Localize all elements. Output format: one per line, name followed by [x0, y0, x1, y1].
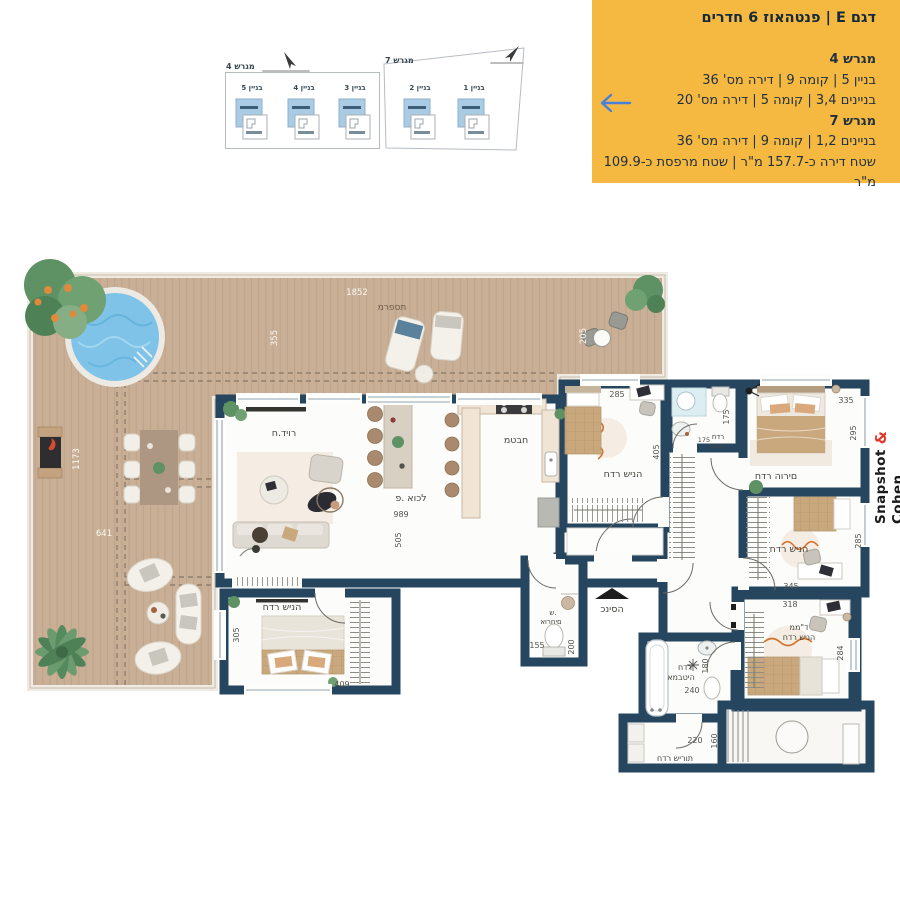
floorplan-page: מגרש 4 מגרש 7 בניין 5 בניין 4: [0, 0, 900, 900]
svg-text:409: 409: [334, 680, 349, 689]
lot7-header: מגרש 7: [592, 112, 876, 133]
building-icon: [232, 93, 272, 145]
lot4-header: מגרש 4: [592, 50, 876, 71]
svg-text:284: 284: [836, 645, 845, 660]
label-service: חדר שירות: [657, 754, 693, 763]
building-icon: [454, 93, 494, 145]
label-parents: חדר הורים: [755, 471, 797, 482]
svg-text:200: 200: [567, 639, 576, 654]
entrance-arrow-icon: [595, 588, 629, 599]
dim-terrace-upper: 355: [270, 330, 280, 346]
svg-text:405: 405: [652, 444, 661, 459]
svg-text:989: 989: [393, 510, 408, 519]
building-icon: [335, 93, 375, 145]
svg-text:318: 318: [782, 600, 797, 609]
lot7-line1: בניינים 1,2 | קומה 9 | דירה מס' 36: [592, 132, 876, 153]
label-mamad-2: חדר שינה: [783, 633, 816, 642]
svg-text:335: 335: [838, 396, 853, 405]
svg-text:175: 175: [722, 409, 731, 424]
svg-text:175: 175: [698, 436, 710, 444]
svg-text:285: 285: [854, 533, 863, 548]
shutter-window: [234, 577, 300, 586]
svg-text:345: 345: [783, 582, 798, 591]
label-dining: פ. אוכל: [395, 493, 426, 504]
lot4-line1: בניין 5 | קומה 9 | דירה מס' 36: [592, 71, 876, 92]
building-icon: [284, 93, 324, 145]
label-living: ח.דיור: [272, 428, 297, 439]
svg-text:220: 220: [687, 736, 702, 745]
lot4-line2: בניינים 3,4 | קומה 5 | דירה מס' 20: [592, 91, 876, 112]
site-plan: מגרש 4 מגרש 7 בניין 5 בניין 4: [0, 0, 590, 190]
label-bedroom-top: חדר שינה: [604, 469, 643, 480]
svg-text:505: 505: [394, 532, 403, 547]
dim-terrace-top: 1852: [346, 288, 368, 298]
label-bedroom-right: חדר שינה: [770, 544, 809, 555]
back-arrow-icon[interactable]: [598, 92, 632, 114]
label-washroom-2: רחצה: [708, 442, 725, 450]
site-building-3: בניין 3: [333, 84, 377, 149]
building-icon: [400, 93, 440, 145]
label-kitchen: מטבח: [504, 435, 528, 446]
site-building-5: בניין 5: [230, 84, 274, 149]
svg-text:305: 305: [232, 627, 241, 642]
model-title: דגם E | פנטהאוז 6 חדרים: [592, 10, 876, 26]
label-bath-1: חדר: [678, 663, 692, 672]
area-line: שטח דירה כ-157.7 מ"ר | שטח מרפסת כ-109.9…: [592, 153, 876, 194]
label-bedroom-bl: חדר שינה: [263, 602, 302, 613]
dim-terrace-left: 1173: [72, 448, 82, 470]
svg-text:160: 160: [710, 733, 719, 748]
label-mamad-1: ממ"ד: [790, 623, 810, 632]
bbq-grill: [38, 427, 62, 478]
lot-7-label: מגרש 7: [385, 56, 414, 65]
label-guest-wc-1: ש.: [549, 609, 556, 617]
label-terrace: מרפסת: [378, 303, 407, 313]
svg-text:155: 155: [529, 641, 544, 650]
site-building-2: בניין 2: [398, 84, 442, 149]
svg-text:240: 240: [684, 686, 699, 695]
street-name-bar: [262, 70, 310, 72]
label-guest-wc-2: אורחים: [540, 618, 562, 626]
dim-terrace-lower: 641: [96, 529, 112, 539]
site-building-1: בניין 1: [452, 84, 496, 149]
lot-4-label: מגרש 4: [226, 62, 255, 71]
dim-terrace-right: 205: [579, 328, 589, 344]
street-name-bar: [490, 62, 524, 64]
north-arrow-icon: [278, 50, 304, 72]
svg-text:180: 180: [701, 658, 710, 673]
floor-plan: 1852 355 205 1173 641 מרפסת: [0, 250, 900, 800]
label-washroom-1: חדר: [712, 433, 724, 441]
label-entrance: כניסה: [600, 604, 623, 615]
site-building-4: בניין 4: [282, 84, 326, 149]
north-arrow-icon: [497, 44, 523, 64]
svg-text:285: 285: [609, 390, 624, 399]
apartment-info-box: דגם E | פנטהאוז 6 חדרים מגרש 4 בניין 5 |…: [592, 0, 900, 183]
svg-text:295: 295: [849, 425, 858, 440]
label-bath-2: אמבטיה: [667, 673, 695, 682]
outdoor-dining-set: [124, 430, 195, 505]
